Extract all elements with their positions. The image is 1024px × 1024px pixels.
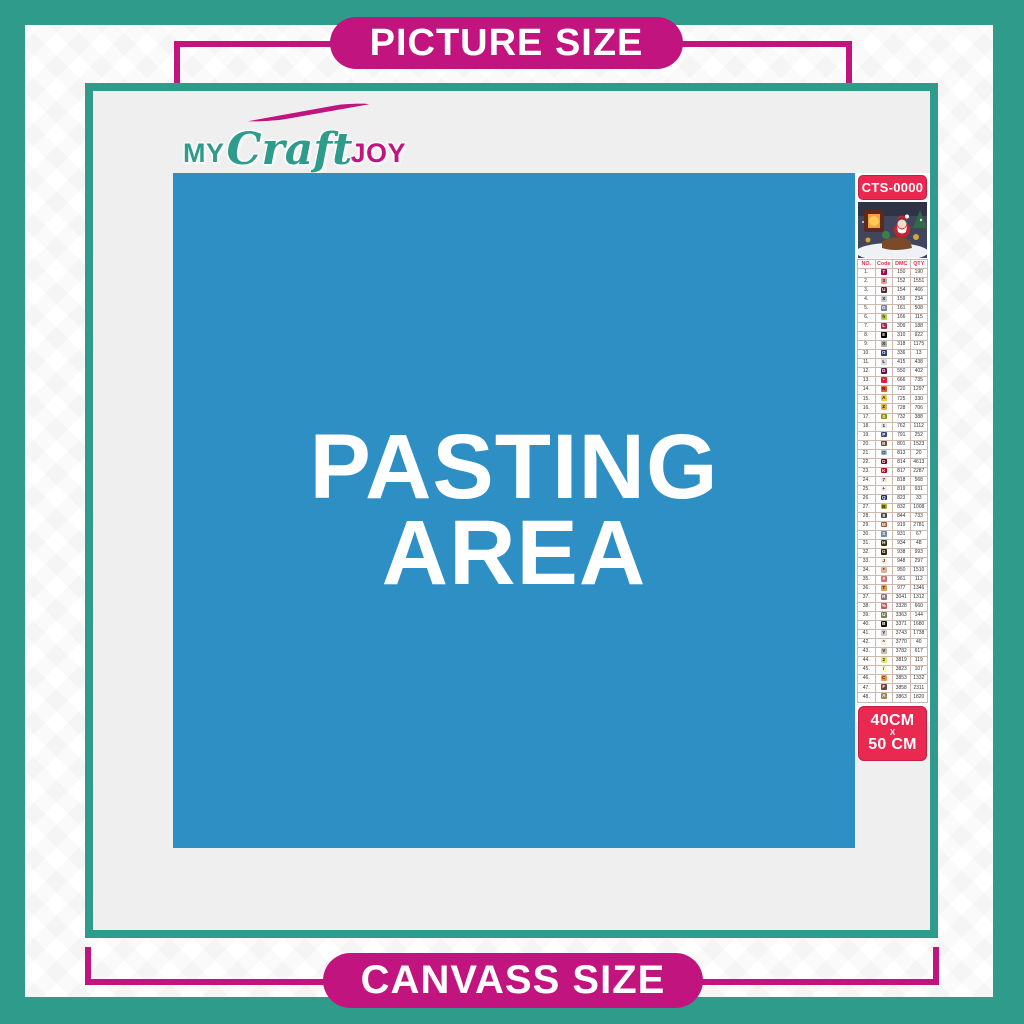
cell-code: K: [875, 467, 893, 476]
cell-qty: 2287: [910, 467, 928, 476]
size-width: 40CM: [871, 713, 915, 729]
cell-code: S: [875, 530, 893, 539]
table-header-cell: QTY: [910, 260, 928, 269]
cell-no: 4.: [858, 296, 876, 305]
color-symbol-swatch: O: [881, 350, 887, 356]
cell-no: 2.: [858, 278, 876, 287]
cell-no: 41.: [858, 630, 876, 639]
table-row: 23.K8172287: [858, 467, 928, 476]
brand-logo: MY Craft JOY: [183, 100, 383, 172]
color-table-body: 1.T1501902.315215513.U1544664.X1592345.G…: [858, 269, 928, 703]
cell-code: P: [875, 431, 893, 440]
cell-no: 9.: [858, 341, 876, 350]
cell-qty: 660: [910, 603, 928, 612]
cell-dmc: 919: [893, 521, 911, 530]
cell-dmc: 666: [893, 377, 911, 386]
cell-dmc: 725: [893, 395, 911, 404]
color-symbol-swatch: %: [881, 603, 887, 609]
cell-qty: 733: [910, 512, 928, 521]
cell-qty: 1332: [910, 675, 928, 684]
cell-code: B: [875, 503, 893, 512]
table-row: 10.O33613: [858, 350, 928, 359]
cell-no: 20.: [858, 440, 876, 449]
color-symbol-swatch: A: [881, 693, 887, 699]
color-symbol-swatch: C: [881, 675, 887, 681]
table-row: 47.F38582311: [858, 684, 928, 693]
cell-qty: 4613: [910, 458, 928, 467]
table-header-row: NO.CodeDMCQTY: [858, 260, 928, 269]
cell-no: 32.: [858, 548, 876, 557]
cell-no: 11.: [858, 359, 876, 368]
color-symbol-swatch: R: [881, 594, 887, 600]
cell-dmc: 3041: [893, 594, 911, 603]
cell-qty: 438: [910, 359, 928, 368]
cell-dmc: 823: [893, 494, 911, 503]
cell-no: 12.: [858, 368, 876, 377]
table-row: 34.*9501510: [858, 567, 928, 576]
cell-code: E: [875, 332, 893, 341]
cell-qty: 33: [910, 494, 928, 503]
color-symbol-swatch: /: [881, 666, 887, 672]
cell-qty: 1346: [910, 585, 928, 594]
cell-no: 25.: [858, 485, 876, 494]
cell-qty: 2311: [910, 684, 928, 693]
table-row: 33.J948297: [858, 558, 928, 567]
cell-code: X: [875, 341, 893, 350]
cell-no: 48.: [858, 693, 876, 702]
cell-qty: 735: [910, 377, 928, 386]
table-row: 7.L309188: [858, 323, 928, 332]
cell-no: 31.: [858, 539, 876, 548]
cell-code: 8: [875, 512, 893, 521]
table-row: 18.17621112: [858, 422, 928, 431]
color-symbol-swatch: B: [881, 621, 887, 627]
cell-qty: 1510: [910, 567, 928, 576]
cell-dmc: 310: [893, 332, 911, 341]
cell-no: 16.: [858, 404, 876, 413]
cell-code: C: [875, 675, 893, 684]
product-graphic: MY Craft JOY PASTING AREA CTS-0000: [0, 0, 1024, 1024]
cell-dmc: 161: [893, 305, 911, 314]
table-row: 40.B33711680: [858, 621, 928, 630]
cell-dmc: 336: [893, 350, 911, 359]
cell-qty: 922: [910, 332, 928, 341]
cell-dmc: 832: [893, 503, 911, 512]
table-row: 22.D8144613: [858, 458, 928, 467]
color-symbol-swatch: K: [881, 468, 887, 474]
color-symbol-swatch: 2: [881, 657, 887, 663]
color-symbol-swatch: 1: [881, 423, 887, 429]
color-symbol-swatch: S: [881, 531, 887, 537]
table-row: 43.V3782617: [858, 648, 928, 657]
table-row: 27.B8321008: [858, 503, 928, 512]
cell-dmc: 3743: [893, 630, 911, 639]
bottom-accent-stub-left: [85, 947, 91, 985]
cell-no: 43.: [858, 648, 876, 657]
table-row: 25.+819931: [858, 485, 928, 494]
table-row: 41.Y37431738: [858, 630, 928, 639]
logo-text-my: MY: [183, 138, 225, 169]
table-row: 2.31521551: [858, 278, 928, 287]
cell-code: U: [875, 287, 893, 296]
cell-code: Q: [875, 494, 893, 503]
cell-dmc: 3863: [893, 693, 911, 702]
logo-text-joy: JOY: [350, 138, 406, 169]
table-row: 9.X3181175: [858, 341, 928, 350]
cell-qty: 107: [910, 666, 928, 675]
cell-code: %: [875, 603, 893, 612]
cell-no: 6.: [858, 314, 876, 323]
cell-code: J: [875, 558, 893, 567]
color-symbol-swatch: T: [881, 585, 887, 591]
color-symbol-swatch: A: [881, 395, 887, 401]
cell-code: Z: [875, 404, 893, 413]
cell-qty: 1551: [910, 278, 928, 287]
legend-sidebar: CTS-0000 NO.CodeDMCQTY: [855, 173, 930, 722]
cell-no: 10.: [858, 350, 876, 359]
cell-no: 45.: [858, 666, 876, 675]
cell-qty: 115: [910, 314, 928, 323]
cell-no: 39.: [858, 612, 876, 621]
cell-dmc: 318: [893, 341, 911, 350]
cell-dmc: 762: [893, 422, 911, 431]
cell-code: F: [875, 684, 893, 693]
cell-dmc: 938: [893, 548, 911, 557]
cell-qty: 402: [910, 368, 928, 377]
cell-no: 7.: [858, 323, 876, 332]
color-symbol-swatch: F: [881, 684, 887, 690]
cell-code: R: [875, 594, 893, 603]
color-symbol-swatch: #: [881, 576, 887, 582]
cell-no: 30.: [858, 530, 876, 539]
cell-no: 47.: [858, 684, 876, 693]
cell-dmc: 159: [893, 296, 911, 305]
cell-no: 46.: [858, 675, 876, 684]
cell-dmc: 3328: [893, 603, 911, 612]
color-symbol-swatch: G: [881, 305, 887, 311]
cell-no: 18.: [858, 422, 876, 431]
cell-code: D: [875, 368, 893, 377]
cell-no: 37.: [858, 594, 876, 603]
cell-dmc: 950: [893, 567, 911, 576]
table-row: 35.#961112: [858, 576, 928, 585]
color-symbol-swatch: 7: [881, 477, 887, 483]
cell-code: @: [875, 449, 893, 458]
table-row: 8.E310922: [858, 332, 928, 341]
cell-dmc: 961: [893, 576, 911, 585]
table-row: 38.%3328660: [858, 603, 928, 612]
cell-code: +: [875, 485, 893, 494]
cell-qty: 1297: [910, 386, 928, 395]
cell-no: 5.: [858, 305, 876, 314]
color-symbol-swatch: Y: [881, 630, 887, 636]
cell-qty: 617: [910, 648, 928, 657]
color-symbol-swatch: D: [881, 459, 887, 465]
color-symbol-swatch: X: [881, 341, 887, 347]
cell-qty: 119: [910, 657, 928, 666]
cell-qty: 1312: [910, 594, 928, 603]
cell-qty: 252: [910, 431, 928, 440]
cell-code: D: [875, 458, 893, 467]
cell-no: 21.: [858, 449, 876, 458]
cell-code: ^: [875, 639, 893, 648]
color-symbol-swatch: L: [881, 323, 887, 329]
cell-no: 44.: [858, 657, 876, 666]
cell-no: 34.: [858, 567, 876, 576]
cell-dmc: 819: [893, 485, 911, 494]
color-symbol-swatch: ^: [881, 639, 887, 645]
color-symbol-swatch: *: [881, 567, 887, 573]
table-row: 45./3823107: [858, 666, 928, 675]
cell-code: A: [875, 693, 893, 702]
cell-dmc: 166: [893, 314, 911, 323]
color-symbol-swatch: L: [881, 359, 887, 365]
color-symbol-swatch: U: [881, 612, 887, 618]
cell-no: 3.: [858, 287, 876, 296]
cell-code: V: [875, 648, 893, 657]
cell-code: 2: [875, 657, 893, 666]
pasting-area-label: PASTING AREA: [309, 425, 718, 596]
cell-qty: 568: [910, 476, 928, 485]
cell-code: h: [875, 314, 893, 323]
color-symbol-swatch: G: [881, 549, 887, 555]
cell-no: 35.: [858, 576, 876, 585]
dmc-color-table: NO.CodeDMCQTY 1.T1501902.315215513.U1544…: [857, 259, 928, 703]
cell-dmc: 3858: [893, 684, 911, 693]
cell-no: 38.: [858, 603, 876, 612]
color-symbol-swatch: M: [881, 522, 887, 528]
cell-no: 26.: [858, 494, 876, 503]
pasting-line1: PASTING: [309, 425, 718, 511]
color-symbol-swatch: J: [881, 558, 887, 564]
cell-qty: 48: [910, 539, 928, 548]
cell-qty: 1175: [910, 341, 928, 350]
canvass-size-banner: CANVASS SIZE: [323, 953, 703, 1008]
product-thumbnail: [858, 202, 927, 258]
cell-code: N: [875, 386, 893, 395]
cell-code: H: [875, 539, 893, 548]
table-row: 39.U3363144: [858, 612, 928, 621]
cell-code: L: [875, 323, 893, 332]
cell-dmc: 948: [893, 558, 911, 567]
table-row: 31.H93448: [858, 539, 928, 548]
cell-dmc: 732: [893, 413, 911, 422]
cell-qty: 1523: [910, 440, 928, 449]
table-row: 6.h166115: [858, 314, 928, 323]
color-symbol-swatch: D: [881, 368, 887, 374]
cell-no: 1.: [858, 269, 876, 278]
cell-dmc: 791: [893, 431, 911, 440]
cell-code: G: [875, 548, 893, 557]
cell-code: S: [875, 413, 893, 422]
cell-code: B: [875, 440, 893, 449]
table-header-cell: DMC: [893, 260, 911, 269]
cell-qty: 706: [910, 404, 928, 413]
cell-dmc: 3782: [893, 648, 911, 657]
cell-qty: 330: [910, 395, 928, 404]
color-symbol-swatch: Z: [881, 404, 887, 410]
cell-no: 15.: [858, 395, 876, 404]
cell-code: •: [875, 377, 893, 386]
cell-qty: 67: [910, 530, 928, 539]
cell-code: 1: [875, 422, 893, 431]
cell-dmc: 154: [893, 287, 911, 296]
cell-code: X: [875, 296, 893, 305]
cell-qty: 1112: [910, 422, 928, 431]
cell-dmc: 801: [893, 440, 911, 449]
logo-text-craft: Craft: [227, 124, 353, 175]
cell-no: 13.: [858, 377, 876, 386]
table-row: 11.L415438: [858, 359, 928, 368]
cell-no: 19.: [858, 431, 876, 440]
cell-qty: 188: [910, 323, 928, 332]
cell-code: A: [875, 395, 893, 404]
table-row: 46.C38531332: [858, 675, 928, 684]
cell-qty: 144: [910, 612, 928, 621]
table-header-cell: Code: [875, 260, 893, 269]
cell-code: *: [875, 567, 893, 576]
table-row: 5.G161508: [858, 305, 928, 314]
color-symbol-swatch: V: [881, 648, 887, 654]
cell-qty: 1680: [910, 621, 928, 630]
cell-qty: 13: [910, 350, 928, 359]
cell-code: O: [875, 350, 893, 359]
cell-no: 14.: [858, 386, 876, 395]
cell-qty: 190: [910, 269, 928, 278]
cell-code: M: [875, 521, 893, 530]
cell-code: T: [875, 269, 893, 278]
color-symbol-swatch: U: [881, 287, 887, 293]
cell-no: 42.: [858, 639, 876, 648]
color-symbol-swatch: Q: [881, 495, 887, 501]
cell-code: Y: [875, 630, 893, 639]
table-row: 4.X159234: [858, 296, 928, 305]
cell-dmc: 844: [893, 512, 911, 521]
cell-qty: 40: [910, 639, 928, 648]
table-row: 29.M9192781: [858, 521, 928, 530]
pasting-area-square: PASTING AREA: [173, 173, 855, 848]
cell-dmc: 931: [893, 530, 911, 539]
table-row: 14.N7201297: [858, 386, 928, 395]
cell-dmc: 814: [893, 458, 911, 467]
table-row: 16.Z728706: [858, 404, 928, 413]
table-row: 15.A725330: [858, 395, 928, 404]
cell-code: /: [875, 666, 893, 675]
color-symbol-swatch: H: [881, 540, 887, 546]
cell-code: G: [875, 305, 893, 314]
cell-dmc: 817: [893, 467, 911, 476]
cell-qty: 297: [910, 558, 928, 567]
cell-code: L: [875, 359, 893, 368]
color-symbol-swatch: 8: [881, 513, 887, 519]
cell-dmc: 728: [893, 404, 911, 413]
cell-no: 8.: [858, 332, 876, 341]
cell-dmc: 3853: [893, 675, 911, 684]
table-header-cell: NO.: [858, 260, 876, 269]
cell-qty: 20: [910, 449, 928, 458]
table-row: 37.R30411312: [858, 594, 928, 603]
cell-dmc: 3371: [893, 621, 911, 630]
pasting-line2: AREA: [309, 511, 718, 597]
cell-no: 36.: [858, 585, 876, 594]
cell-dmc: 818: [893, 476, 911, 485]
cell-dmc: 3819: [893, 657, 911, 666]
color-symbol-swatch: S: [881, 414, 887, 420]
cell-qty: 2781: [910, 521, 928, 530]
color-symbol-swatch: 3: [881, 278, 887, 284]
cell-dmc: 3823: [893, 666, 911, 675]
cell-code: B: [875, 621, 893, 630]
table-row: 36.T9771346: [858, 585, 928, 594]
cell-qty: 388: [910, 413, 928, 422]
cell-dmc: 550: [893, 368, 911, 377]
cell-dmc: 934: [893, 539, 911, 548]
cell-dmc: 977: [893, 585, 911, 594]
cell-qty: 112: [910, 576, 928, 585]
table-row: 19.P791252: [858, 431, 928, 440]
cell-no: 40.: [858, 621, 876, 630]
cell-qty: 1008: [910, 503, 928, 512]
table-row: 24.7818568: [858, 476, 928, 485]
picture-size-banner: PICTURE SIZE: [330, 17, 683, 69]
cell-no: 23.: [858, 467, 876, 476]
cell-dmc: 150: [893, 269, 911, 278]
cell-code: #: [875, 576, 893, 585]
table-row: 13.•666735: [858, 377, 928, 386]
cell-dmc: 309: [893, 323, 911, 332]
cell-no: 17.: [858, 413, 876, 422]
bottom-accent-stub-right: [933, 947, 939, 985]
cell-code: 7: [875, 476, 893, 485]
cell-no: 24.: [858, 476, 876, 485]
table-row: 48.A38631820: [858, 693, 928, 702]
cell-no: 27.: [858, 503, 876, 512]
color-symbol-swatch: h: [881, 314, 887, 320]
cell-dmc: 3770: [893, 639, 911, 648]
color-symbol-swatch: P: [881, 432, 887, 438]
table-row: 17.S732388: [858, 413, 928, 422]
table-row: 1.T150190: [858, 269, 928, 278]
size-height: 50 CM: [868, 737, 917, 753]
table-row: 3.U154466: [858, 287, 928, 296]
table-row: 20.B8011523: [858, 440, 928, 449]
canvas-size-badge: 40CM X 50 CM: [858, 706, 927, 761]
color-symbol-swatch: •: [881, 377, 887, 383]
cell-no: 22.: [858, 458, 876, 467]
cell-qty: 993: [910, 548, 928, 557]
cell-qty: 1738: [910, 630, 928, 639]
table-row: 28.8844733: [858, 512, 928, 521]
color-symbol-swatch: E: [881, 332, 887, 338]
table-row: 26.Q82333: [858, 494, 928, 503]
color-symbol-swatch: +: [881, 486, 887, 492]
cell-dmc: 3363: [893, 612, 911, 621]
cell-qty: 508: [910, 305, 928, 314]
cell-qty: 466: [910, 287, 928, 296]
table-row: 21.@81320: [858, 449, 928, 458]
color-symbol-swatch: B: [881, 441, 887, 447]
cell-dmc: 720: [893, 386, 911, 395]
cell-no: 33.: [858, 558, 876, 567]
table-row: 30.S93167: [858, 530, 928, 539]
color-symbol-swatch: @: [881, 450, 887, 456]
color-symbol-swatch: X: [881, 296, 887, 302]
table-row: 12.D550402: [858, 368, 928, 377]
cell-no: 29.: [858, 521, 876, 530]
cell-dmc: 813: [893, 449, 911, 458]
table-row: 44.23819119: [858, 657, 928, 666]
cell-code: 3: [875, 278, 893, 287]
